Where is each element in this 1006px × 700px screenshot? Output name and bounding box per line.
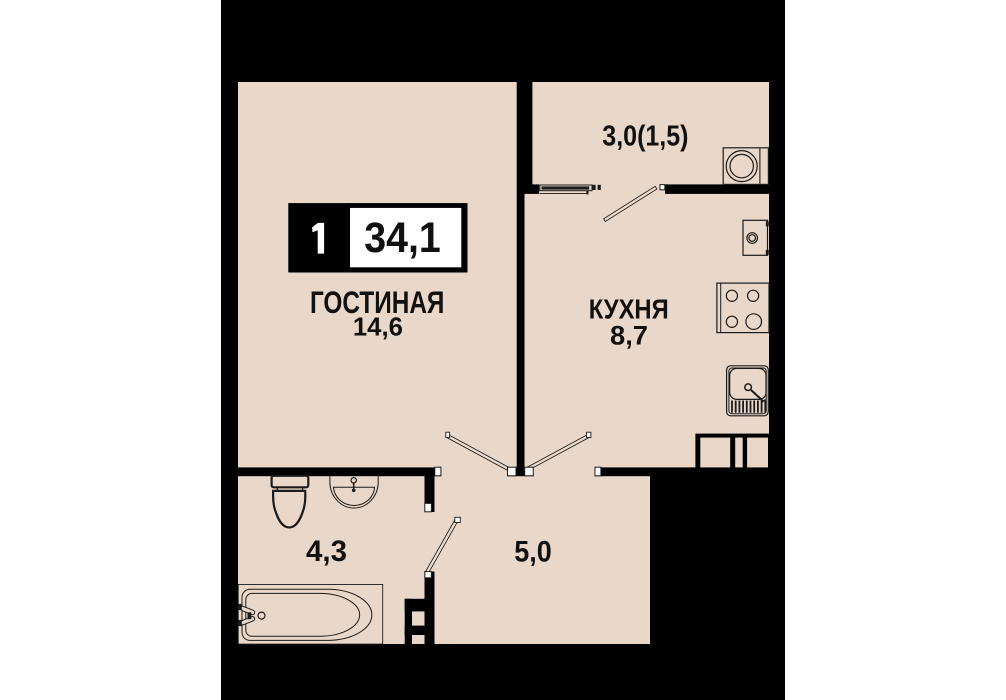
svg-text:14,6: 14,6 — [353, 314, 403, 342]
svg-text:4,3: 4,3 — [306, 535, 347, 568]
svg-text:5,0: 5,0 — [514, 536, 552, 569]
svg-text:8,7: 8,7 — [610, 321, 648, 351]
svg-text:34,1: 34,1 — [364, 215, 441, 262]
svg-text:3,0(1,5): 3,0(1,5) — [602, 120, 688, 152]
